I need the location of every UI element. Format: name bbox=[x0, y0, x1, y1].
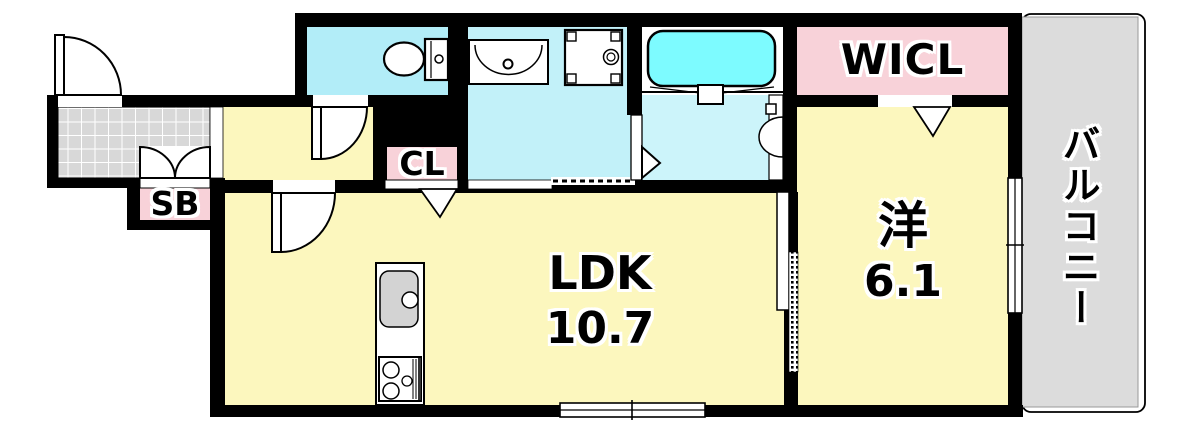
room-label-wicl: WICL bbox=[797, 39, 1008, 81]
entry-opening bbox=[58, 95, 122, 107]
shoe-box-double-doors bbox=[140, 146, 210, 178]
vanity-sink bbox=[469, 40, 548, 84]
room-label-closet: CL bbox=[384, 147, 460, 180]
ldk-door-opening bbox=[273, 180, 335, 193]
bath-floor bbox=[642, 95, 769, 180]
gas-stove bbox=[379, 357, 421, 401]
floorplan-canvas: LDK 10.7 洋 6.1 WICL CL SB バルコニー bbox=[0, 0, 1195, 436]
east-window bbox=[1006, 178, 1024, 313]
room-label-ldk: LDK bbox=[495, 250, 705, 296]
washing-machine-pan bbox=[565, 30, 622, 85]
room-label-shoe-box: SB bbox=[140, 187, 210, 220]
room-label-balcony: バルコニー bbox=[1053, 96, 1103, 356]
south-window bbox=[560, 400, 705, 420]
room-area-western-room: 6.1 bbox=[798, 260, 1008, 304]
room-area-ldk: 10.7 bbox=[495, 307, 705, 351]
entrance-step bbox=[210, 107, 223, 178]
room-label-western-room: 洋 bbox=[798, 201, 1008, 251]
entry-door-swing bbox=[55, 35, 121, 95]
washroom-opening bbox=[468, 180, 552, 189]
kitchen-counter bbox=[376, 263, 424, 405]
wicl-door-opening bbox=[878, 95, 952, 107]
kitchen-faucet bbox=[402, 292, 418, 308]
toilet-door-opening bbox=[313, 95, 368, 107]
